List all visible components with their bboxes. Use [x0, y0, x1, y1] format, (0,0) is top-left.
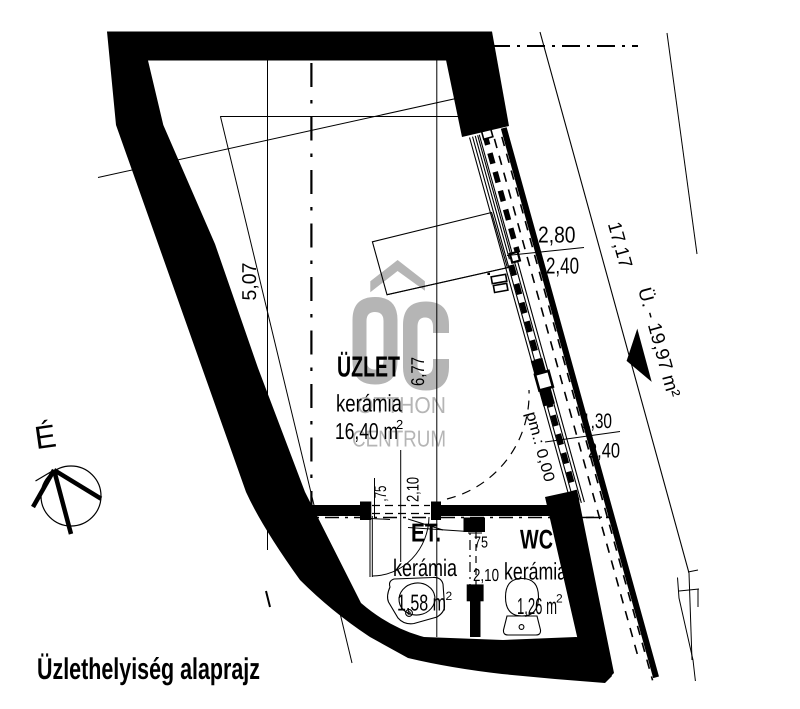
- svg-text:Üzlethelyiség alaprajz: Üzlethelyiség alaprajz: [37, 653, 260, 686]
- svg-text:kerámia: kerámia: [504, 559, 567, 586]
- svg-text:5,07: 5,07: [239, 263, 261, 301]
- svg-text:1,30: 1,30: [582, 410, 612, 433]
- svg-text:É: É: [32, 417, 58, 456]
- svg-text:2: 2: [556, 592, 563, 606]
- svg-text:1,58 m: 1,58 m: [397, 590, 446, 616]
- svg-text:ET.: ET.: [411, 518, 441, 548]
- svg-text:17,17: 17,17: [603, 220, 636, 271]
- svg-text:2: 2: [396, 417, 403, 432]
- svg-text:ÜZLET: ÜZLET: [337, 352, 400, 384]
- svg-text:2,10: 2,10: [473, 565, 499, 585]
- svg-text:kerámia: kerámia: [336, 391, 403, 418]
- svg-text:,75: ,75: [371, 486, 390, 502]
- svg-text:WC: WC: [520, 525, 553, 555]
- svg-text:1,26 m: 1,26 m: [517, 593, 557, 619]
- svg-text:2,40: 2,40: [588, 440, 620, 463]
- svg-text:6,77: 6,77: [407, 357, 428, 386]
- svg-text:2: 2: [446, 589, 453, 603]
- svg-text:2,40: 2,40: [546, 253, 579, 279]
- svg-text:kerámia: kerámia: [393, 555, 457, 582]
- svg-text:16,40 m: 16,40 m: [335, 418, 398, 444]
- svg-text:2,10: 2,10: [404, 477, 423, 502]
- svg-text:2,80: 2,80: [538, 222, 576, 248]
- svg-text:75: 75: [474, 535, 488, 552]
